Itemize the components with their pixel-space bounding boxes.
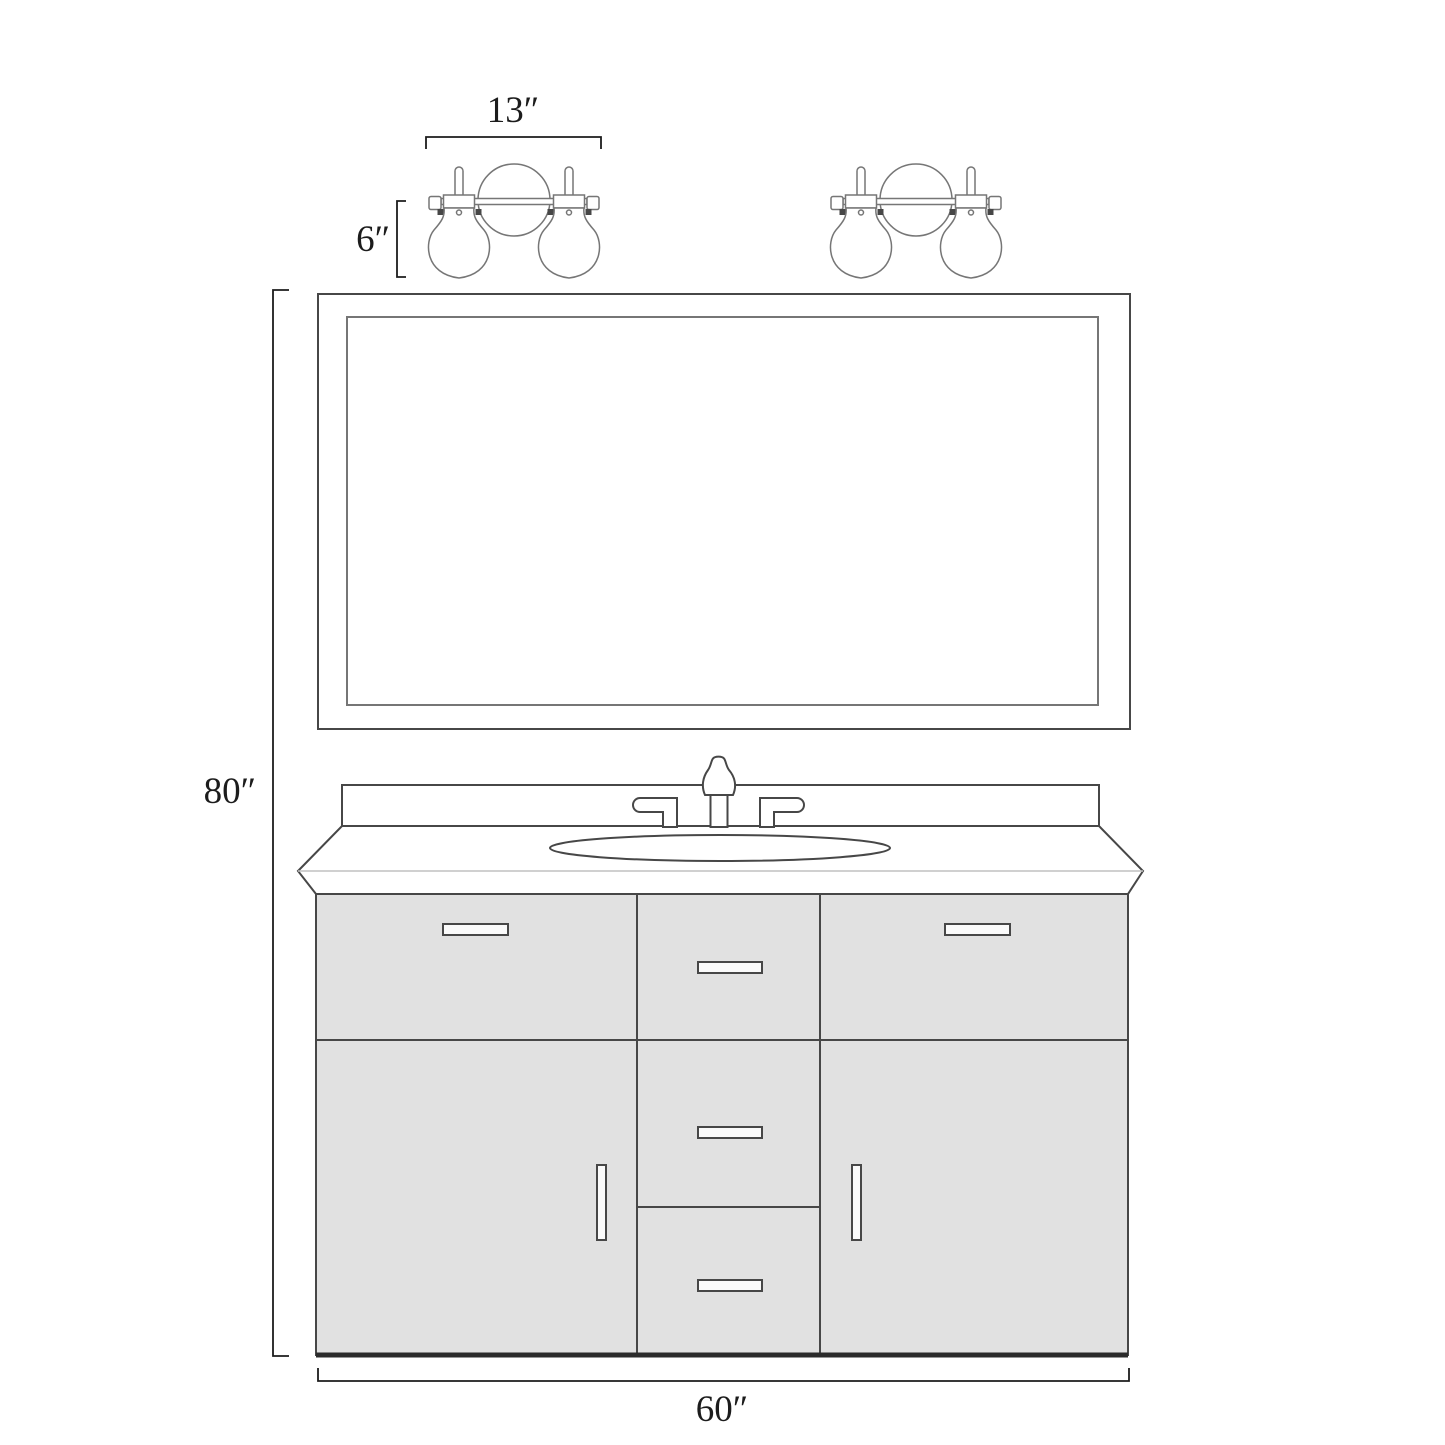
dimension-label-80: 80″ bbox=[204, 771, 256, 812]
faucet-spout-column bbox=[711, 795, 728, 827]
middle-top-drawer-handle bbox=[698, 962, 762, 973]
faucet-spout-head bbox=[703, 757, 735, 795]
right-door-handle bbox=[852, 1165, 861, 1240]
diagram-canvas: 13″ 6″ 80″ bbox=[0, 0, 1445, 1445]
dimension-label-60: 60″ bbox=[696, 1389, 748, 1430]
dimension-line-6 bbox=[397, 201, 406, 277]
countertop-assembly bbox=[298, 757, 1143, 894]
middle-center-drawer-handle bbox=[698, 1127, 762, 1138]
dimension-line-80 bbox=[273, 290, 289, 1356]
vanity-dimension-diagram: 13″ 6″ 80″ bbox=[0, 0, 1445, 1445]
mirror-inner-frame bbox=[347, 317, 1098, 705]
vanity-cabinet bbox=[316, 894, 1128, 1355]
left-sconce-light bbox=[428, 164, 599, 278]
right-sconce-light bbox=[830, 164, 1001, 278]
sink-basin bbox=[550, 835, 890, 861]
dimension-label-13: 13″ bbox=[487, 90, 539, 131]
dimension-vanity-width: 60″ bbox=[318, 1368, 1129, 1430]
dimension-fixture-height: 6″ bbox=[356, 201, 406, 277]
left-top-drawer-handle bbox=[443, 924, 508, 935]
mirror bbox=[318, 294, 1130, 729]
left-door-handle bbox=[597, 1165, 606, 1240]
dimension-overall-height: 80″ bbox=[204, 290, 289, 1356]
mirror-outer-frame bbox=[318, 294, 1130, 729]
dimension-fixture-width: 13″ bbox=[426, 90, 601, 149]
dimension-line-60 bbox=[318, 1368, 1129, 1381]
dimension-label-6: 6″ bbox=[356, 219, 390, 260]
middle-bottom-drawer-handle bbox=[698, 1280, 762, 1291]
right-top-drawer-handle bbox=[945, 924, 1010, 935]
dimension-line-13 bbox=[426, 137, 601, 149]
